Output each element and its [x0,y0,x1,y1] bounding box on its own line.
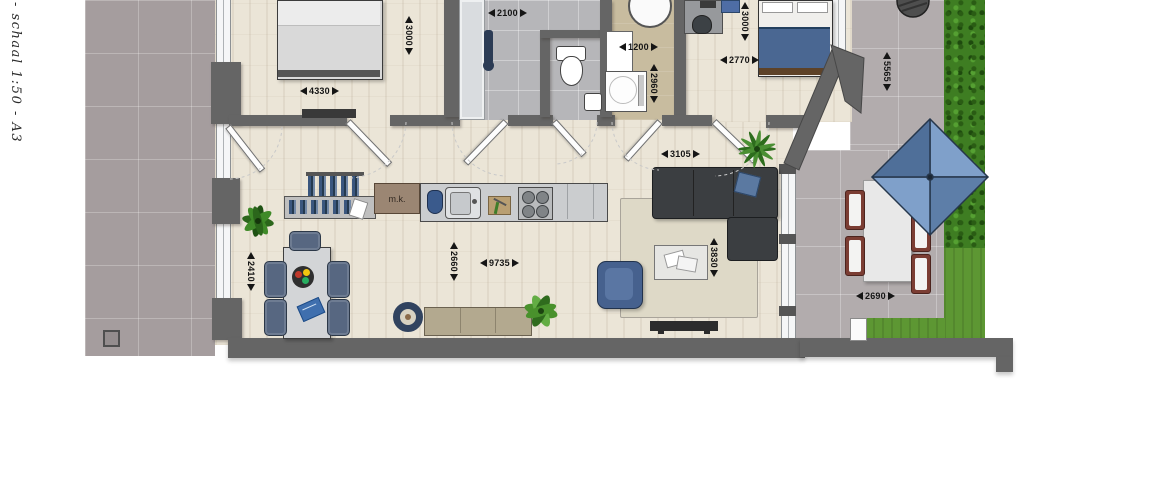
sink-basin [450,192,471,215]
dim-arrow-down-icon [450,274,458,281]
garden-wall-south [800,338,1013,357]
sink-tap-dot [472,199,477,204]
wall-utility-south [662,115,712,126]
dim-bedroom1-depth: 3000 [404,16,414,55]
dim-arrow-left-icon [720,56,727,64]
dim-arrow-up-icon [247,252,255,259]
stool-hub [405,314,411,320]
dimension-label: 3830 [709,247,719,268]
dim-arrow-down-icon [405,48,413,55]
bed2-footboard [759,68,830,75]
dim-arrow-up-icon [450,242,458,249]
bed2-pillow-a [762,2,793,13]
hand-basin [584,93,602,111]
leek [494,202,499,214]
dimension-label: 2960 [649,73,659,94]
sofa-seam-a [693,170,694,216]
bed-footboard [278,70,380,77]
sofa-chaise [727,217,778,261]
burner-4 [536,205,549,218]
sofa-corner [652,167,778,219]
dim-bedroom2-width: 2770 [720,55,759,65]
dim-hall-lounge-width: 3105 [661,149,700,159]
dim-bedroom1-width: 4330 [300,86,339,96]
fruit-yellow [303,269,310,276]
wall-toilet-partition [540,30,550,117]
cooktop [518,187,553,220]
floor-plan: m.k. [0,0,1160,483]
wall-pillar-west-b [212,178,240,224]
bedroom1-radiator [302,109,356,118]
garden-table [863,180,912,282]
scale-note: - schaal 1:50 - A3 [8,2,23,143]
bed2-blanket [759,27,830,71]
desk-monitor [700,1,716,8]
dim-living-length: 9735 [480,258,519,268]
garden-wall-step [996,357,1013,372]
dimension-label: 3000 [404,25,414,46]
armchair-seat [605,268,633,300]
dim-utility-depth: 2960 [649,64,659,103]
armchair-blue [597,261,643,309]
dining-chair-head [289,231,321,251]
garden-grass-right [944,248,985,340]
dim-arrow-down-icon [650,96,658,103]
dimension-label: 2690 [865,291,886,301]
tv-foot-a [658,331,664,334]
shower-glass-screen [460,0,484,119]
book-page-line [302,303,316,310]
dim-arrow-left-icon [856,292,863,300]
dim-kitchen-depth: 2660 [449,242,459,281]
garden-chair-left-1 [845,190,865,230]
dim-utility-width: 1200 [619,42,658,52]
dim-garden-width: 2690 [856,291,895,301]
dim-arrow-up-icon [741,2,749,9]
dimension-label: 5565 [882,61,892,82]
tv-cabinet [424,307,532,336]
terrace-left [85,0,215,356]
burner-1 [522,191,535,204]
door-mullion-a [779,164,796,174]
console-shelf-books [284,196,376,219]
kitchen-faucet [427,190,443,214]
meter-cupboard: m.k. [374,183,420,214]
dimension-label: 3105 [670,149,691,159]
magazine-b [676,255,698,272]
dim-lounge-depth: 3830 [709,238,719,277]
wall-bathroom-west [444,0,460,117]
dining-table [283,247,331,339]
dining-chair-left-1 [264,261,287,298]
dim-arrow-right-icon [332,87,339,95]
washer-drum [609,76,637,104]
dim-arrow-right-icon [520,9,527,17]
garden-chair-right-2 [911,254,931,294]
dimension-label: 4330 [309,86,330,96]
counter-seam-a [567,184,568,219]
dimension-label: 1200 [628,42,649,52]
dining-chair-right-1 [327,261,350,298]
door-mullion-b [779,234,796,244]
dim-garden-depth: 5565 [882,52,892,91]
garden-hedge [944,0,985,250]
dim-arrow-down-icon [247,284,255,291]
wall-pillar-west-c [212,298,242,340]
bed-sheet-fold [278,1,380,26]
books-row-upper [308,176,362,196]
dim-arrow-left-icon [480,259,487,267]
dim-arrow-up-icon [883,52,891,59]
dimension-label: 2410 [246,261,256,282]
dimension-label: 9735 [489,258,510,268]
bed-double [277,0,383,80]
dim-arrow-right-icon [512,259,519,267]
dim-arrow-up-icon [405,16,413,23]
fruit-bowl [292,266,314,288]
dim-arrow-right-icon [888,292,895,300]
coffee-table [654,245,708,280]
cabinet-seam-a [460,308,461,333]
stool-round [393,302,423,332]
shower-head [483,60,494,71]
garden-wall-post [850,318,867,341]
bed-single [758,0,833,77]
shower-fixture [484,30,493,64]
garden-chair-left-2 [845,236,865,276]
dim-bedroom2-depth: 3000 [740,2,750,41]
dimension-label: 3000 [740,11,750,32]
washing-machine [605,71,647,112]
dim-bathroom-width: 2100 [488,8,527,18]
dim-arrow-right-icon [752,56,759,64]
bedroom2-mat [721,0,740,13]
bed2-pillow-b [797,2,828,13]
dim-dining-depth: 2410 [246,252,256,291]
washer-controls [638,75,644,106]
desk-chair [692,15,712,34]
toilet-bowl [560,56,583,86]
wall-south [228,338,805,358]
tv-foot-b [704,331,710,334]
dining-chair-right-2 [327,299,350,336]
meter-cupboard-label: m.k. [375,184,419,213]
terrace-drain [103,330,120,347]
tv-screen [650,321,718,331]
door-mullion-c [779,306,796,316]
dim-arrow-left-icon [300,87,307,95]
wall-bedroom2-south [766,115,804,128]
window-west-wall [216,0,231,340]
kitchen-counter [420,183,608,222]
dim-arrow-left-icon [661,150,668,158]
terrace-right-upper [850,0,946,152]
garden-grass-bottom [855,318,945,340]
burner-2 [536,191,549,204]
dimension-label: 2770 [729,55,750,65]
fruit-red [295,271,302,278]
dim-arrow-down-icon [741,34,749,41]
dim-arrow-up-icon [650,64,658,71]
cutting-board [488,196,511,215]
fruit-green [302,277,309,284]
dim-arrow-down-icon [883,84,891,91]
dim-arrow-down-icon [710,270,718,277]
garden-chair-right-1 [911,212,931,252]
dim-arrow-left-icon [619,43,626,51]
sofa-seam-b [733,170,734,216]
dining-chair-left-2 [264,299,287,336]
counter-seam-b [593,184,594,219]
dim-arrow-up-icon [710,238,718,245]
dimension-label: 2660 [449,251,459,272]
burner-3 [522,205,535,218]
kitchen-sink [445,187,481,219]
dim-arrow-left-icon [488,9,495,17]
dim-arrow-right-icon [651,43,658,51]
cabinet-seam-b [495,308,496,333]
dimension-label: 2100 [497,8,518,18]
dim-arrow-right-icon [693,150,700,158]
